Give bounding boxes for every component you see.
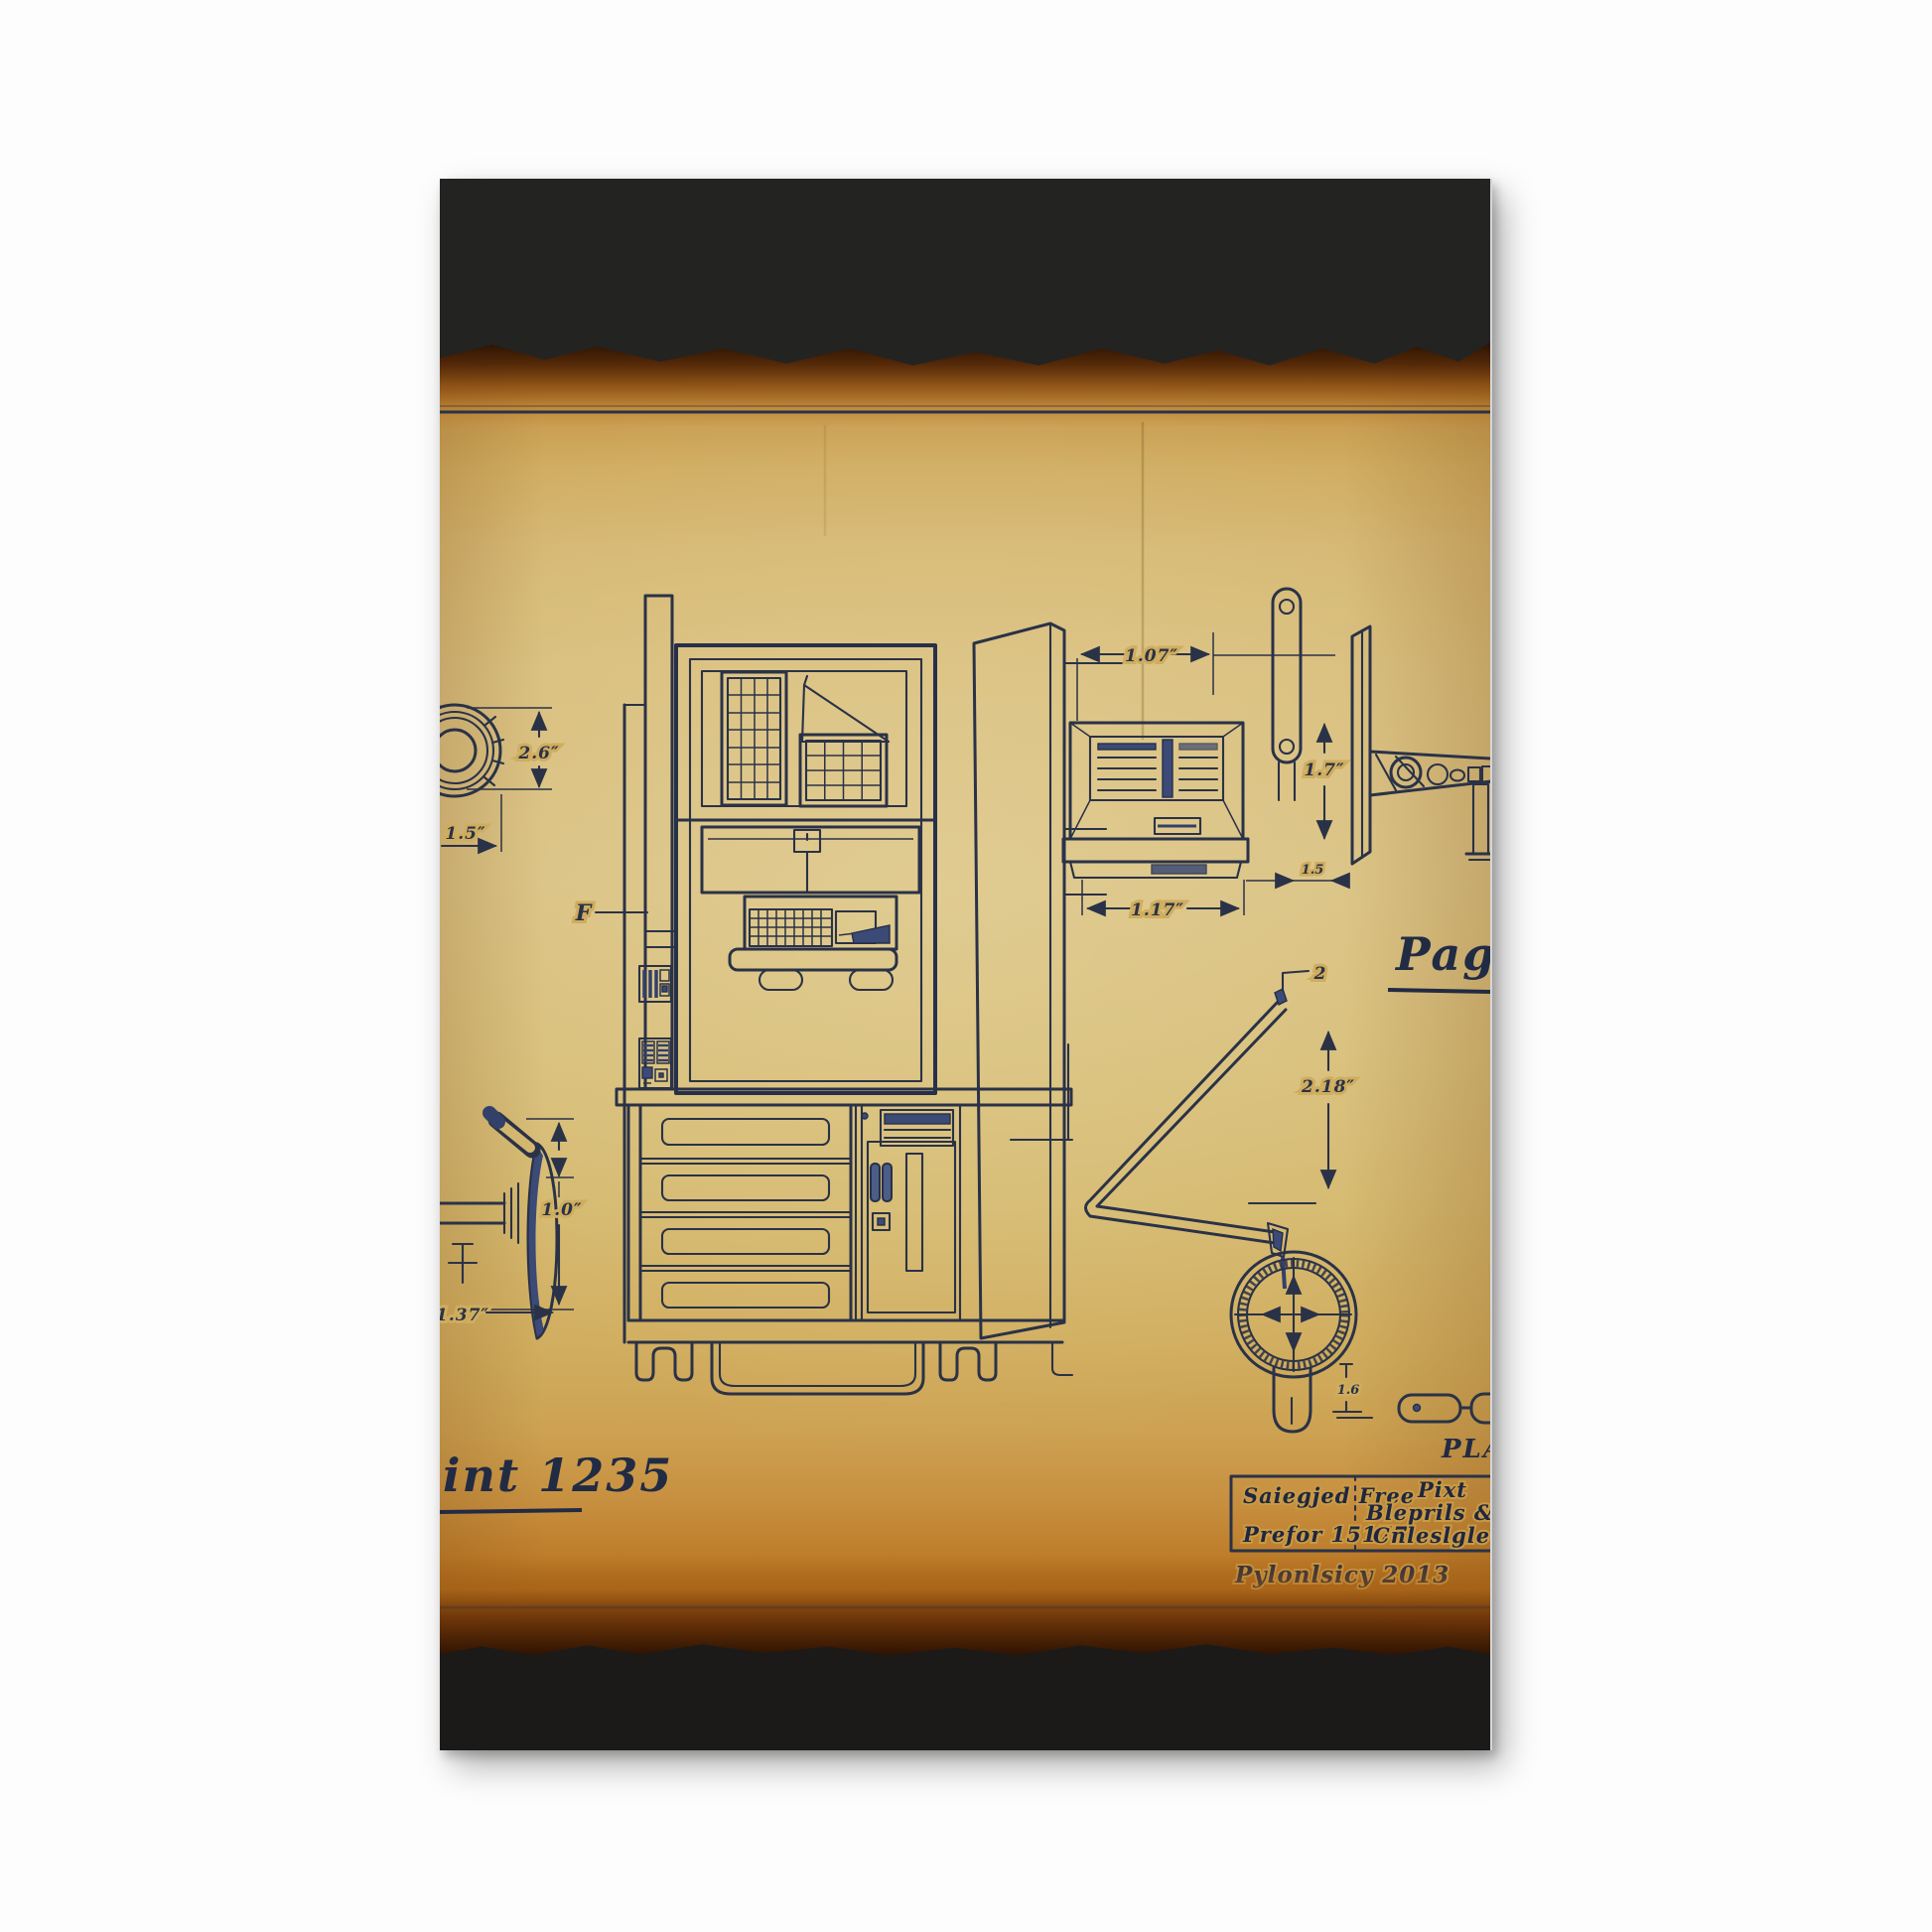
paper-crease [825,422,1143,740]
dim-knob-offset: 1.5″ [445,824,485,844]
dim-vent-gap: 1.5 [1302,863,1324,878]
strap-link-view [1273,589,1301,800]
side-door-panel [974,623,1122,1338]
dial-view: 1.6 [1231,1252,1372,1432]
canvas-print: 2.6″ 1.5″ 1.0″ [440,179,1492,1750]
black-mat-top [440,179,1490,369]
knob-detail-view [440,705,503,796]
plan-caption: PLAN [1441,1435,1490,1464]
lower-cabinet [617,1089,1071,1342]
black-mat-bottom [440,1641,1490,1750]
dim-chute-tip: 2 [1313,964,1327,984]
linkage-view: PLAN [1399,1394,1490,1464]
dim-chute-drop: 2.18″ [1301,1077,1355,1097]
chute-view: 2 2.18″ [1086,964,1356,1289]
cabinet-base [636,1342,1072,1394]
crank-lever-view [440,1113,557,1338]
wall-bracket-view [1352,626,1490,864]
keyboard-tray [730,897,897,990]
dim-vent-width-top: 1.07″ [1125,646,1178,666]
door-louver [862,1110,953,1146]
blueprint-border-lines [440,406,1490,1607]
title-cell-3: Pixt [1417,1477,1467,1502]
dim-vent-width-bottom: 1.17″ [1131,900,1184,920]
dim-lever-height: 1.0″ [541,1200,582,1220]
burnt-edge-bottom [440,1552,1490,1659]
title-cell-5: Cnleslgle Car [1373,1523,1490,1548]
label-f: F [575,900,593,926]
dim-dial-stem: 1.6 [1337,1383,1360,1398]
side-louver-panel [639,966,671,1002]
title-cell-4: Bleprils & Pajm [1365,1500,1490,1525]
caption-texts: int 1235 Pagi [440,927,1490,1512]
dim-lever-width: 1.37″ [440,1306,489,1325]
page-caption: Pagi [1394,927,1490,981]
wide-drawer [676,820,935,893]
blueprint-drawing: 2.6″ 1.5″ 1.0″ [440,179,1490,1750]
front-label: F [575,900,647,926]
dim-vent-height: 1.7″ [1304,760,1344,780]
dim-knob-height: 2.6″ [517,744,559,763]
tall-grid-window [722,672,786,805]
print-caption: int 1235 [443,1449,673,1502]
square-grid-window [800,676,889,806]
vent-box-view [1063,723,1248,878]
